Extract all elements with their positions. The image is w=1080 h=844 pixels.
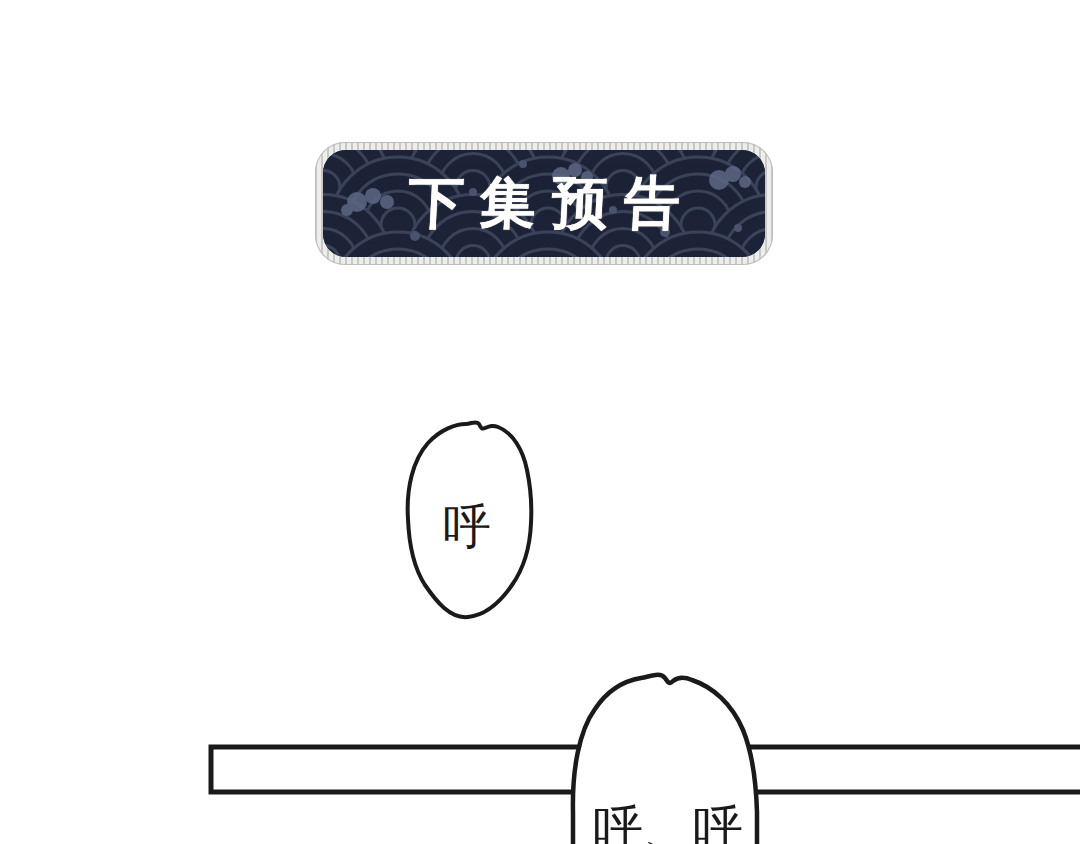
comic-page: 下集预告 呼 呼、呼 [0,0,1080,844]
speech-bubble-1-text: 呼 [404,500,530,552]
comic-art-layer [0,0,1080,844]
speech-bubble-2-text: 呼、呼 [572,802,764,844]
